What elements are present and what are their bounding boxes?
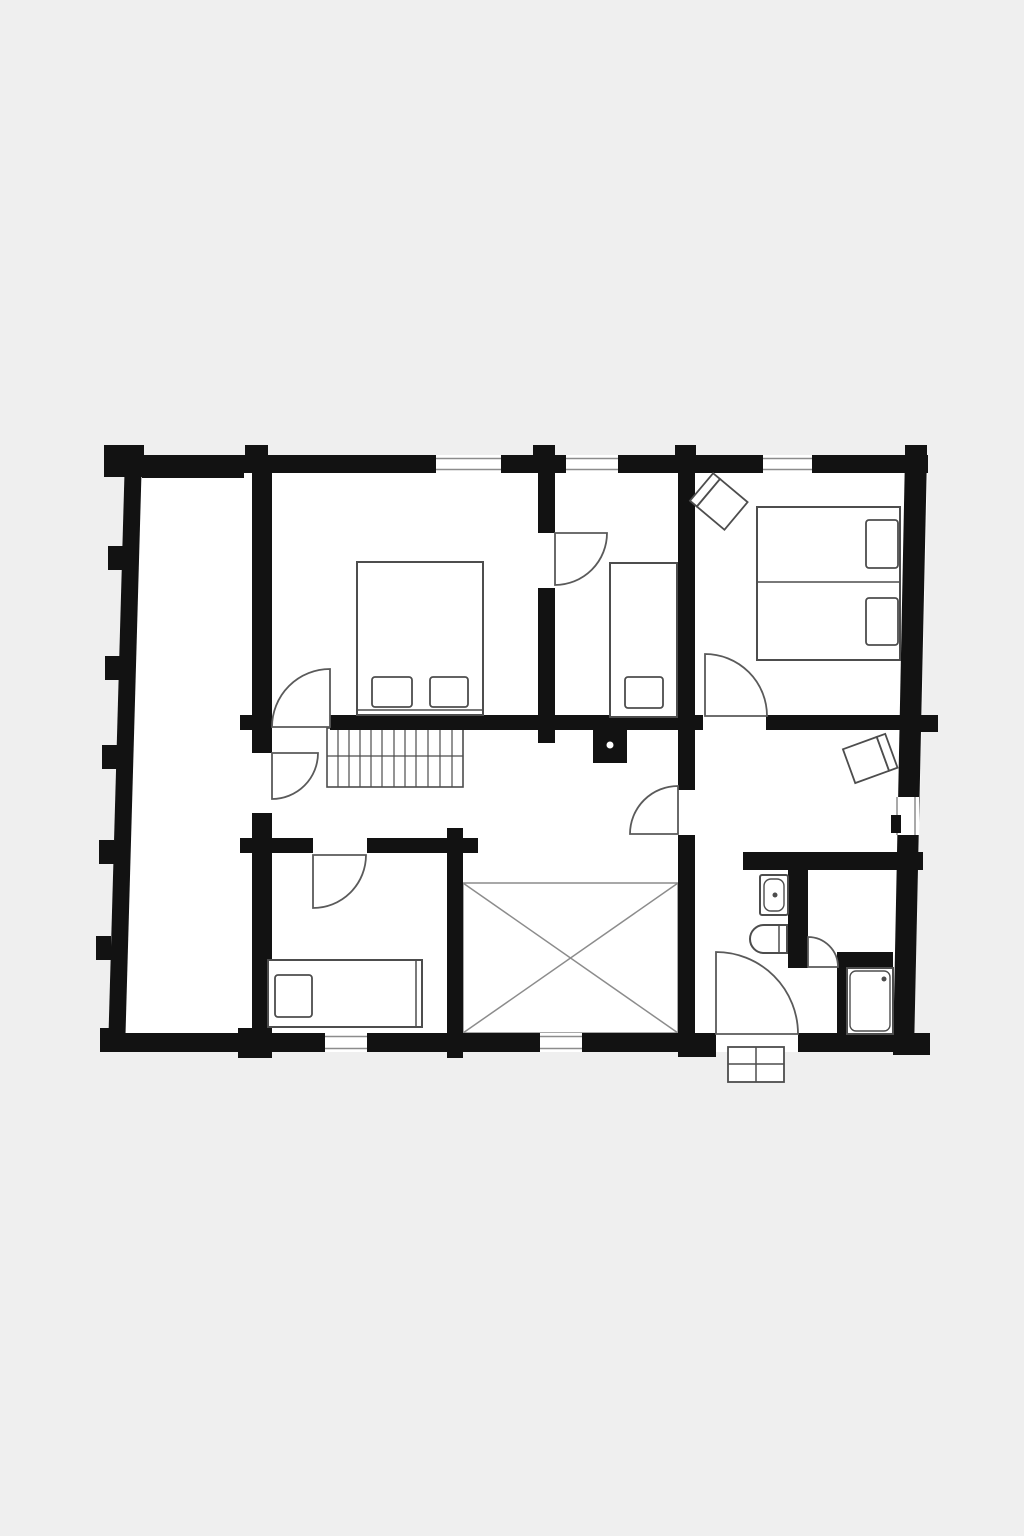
corner-stub-top-left [104, 445, 144, 477]
wall-stub [245, 445, 268, 458]
wall-bottom [108, 1033, 930, 1052]
wall-stub [96, 936, 111, 960]
wall-room4-a [272, 838, 313, 853]
wall-hall-b [766, 715, 905, 730]
window-gap [436, 455, 501, 473]
wall-interior2-lower [538, 588, 555, 715]
wall-stub [447, 1033, 463, 1058]
window-gap [763, 455, 812, 473]
toilet [750, 925, 787, 953]
wall-stub [678, 1033, 716, 1057]
wall-stub [102, 745, 117, 769]
wall-stub [252, 1033, 272, 1058]
floor-plan-page [0, 0, 1024, 1536]
chimney-flue-dot [607, 742, 614, 749]
wall-room4-b [367, 838, 447, 853]
floorplan-svg [0, 0, 1024, 1536]
corner-stub-bottom-left [100, 1028, 125, 1052]
wall-stub [533, 445, 555, 458]
shower-drain-dot [882, 977, 887, 982]
wall-stub [463, 838, 478, 853]
wall-bath-inner [788, 870, 808, 968]
pillow [430, 677, 468, 707]
wall-stub [108, 546, 123, 570]
pillow [372, 677, 412, 707]
pillow [866, 520, 898, 568]
window-gap [566, 455, 618, 473]
wall-stub [105, 656, 120, 680]
pillow [866, 598, 898, 645]
wall-interior3-upper [678, 472, 695, 790]
wall-interior1-upper [252, 472, 272, 753]
wall-interior2-upper [538, 472, 555, 533]
wall-stub [240, 715, 252, 730]
wall-stub [538, 730, 555, 743]
corner-stub-bottom-right [893, 1033, 930, 1055]
wall-stub [240, 838, 252, 853]
wall-wc-bottom [837, 952, 893, 968]
wall-bath-top [743, 852, 923, 870]
pillow [275, 975, 312, 1017]
wall-stub [675, 445, 696, 458]
wall-interior3-lower [678, 835, 695, 1033]
pillow [625, 677, 663, 708]
wall-nub [891, 815, 901, 833]
stairs-outline [327, 728, 463, 787]
wall-room4-right [447, 828, 463, 1033]
wall-stub [99, 840, 114, 864]
wall-stub [238, 1028, 252, 1058]
wall-top-ledge [142, 472, 244, 478]
sink-faucet-dot [773, 893, 778, 898]
wall-stub [905, 715, 938, 732]
wall-stub [905, 445, 927, 458]
layer-stairs [327, 728, 463, 787]
